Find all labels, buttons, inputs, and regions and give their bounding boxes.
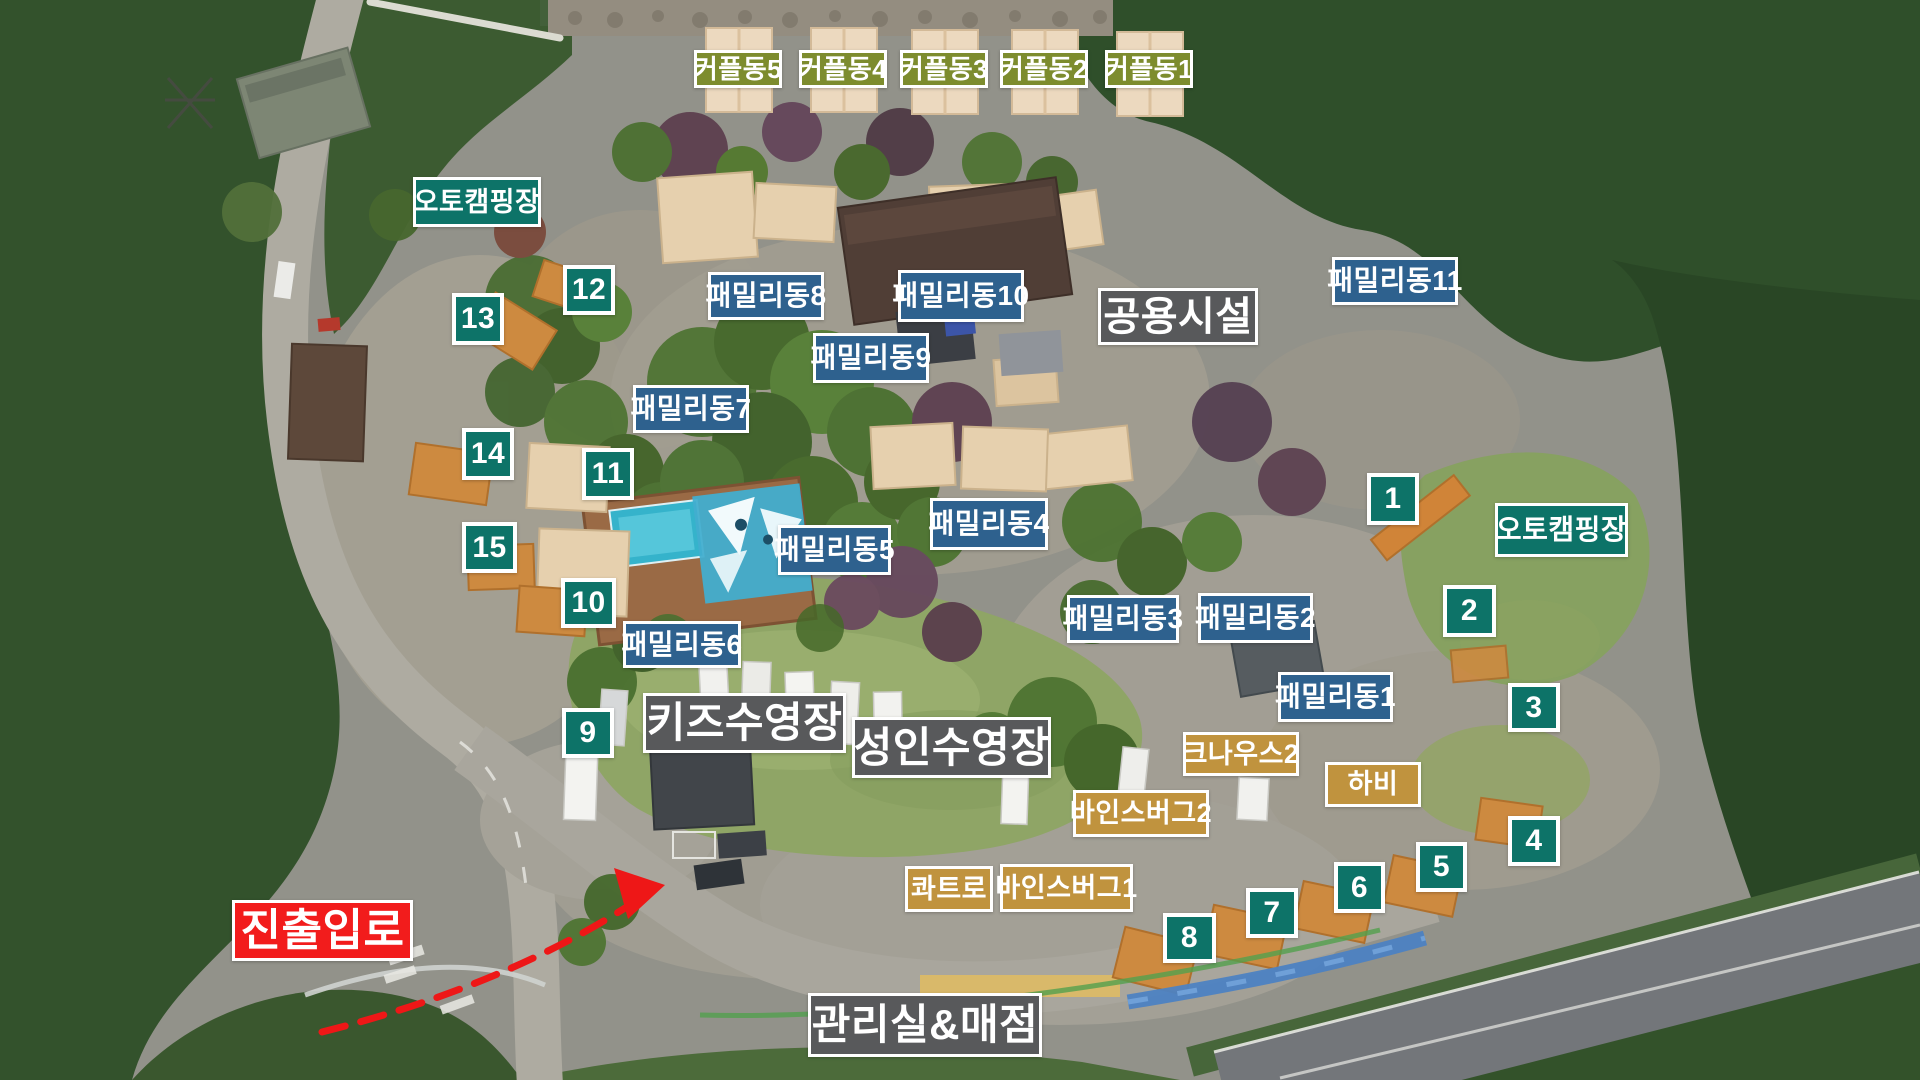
label-site-5: 5: [1416, 842, 1467, 892]
label-knaus-2: 크나우스2: [1183, 732, 1299, 776]
label-coupledong-3: 커플동3: [900, 50, 988, 88]
label-site-2: 2: [1443, 585, 1496, 637]
label-hobby: 하비: [1325, 762, 1421, 807]
label-site-8: 8: [1163, 913, 1216, 963]
label-site-12: 12: [563, 265, 615, 315]
label-coupledong-5: 커플동5: [694, 50, 782, 88]
label-familydong-2: 패밀리동2: [1198, 593, 1313, 643]
label-site-14: 14: [462, 428, 514, 480]
label-familydong-7: 패밀리동7: [633, 385, 749, 433]
label-site-9: 9: [562, 708, 614, 758]
label-site-13: 13: [452, 293, 504, 345]
label-office-store: 관리실&매점: [808, 993, 1042, 1057]
label-familydong-11: 패밀리동11: [1332, 257, 1458, 305]
label-site-7: 7: [1246, 888, 1298, 938]
label-familydong-3: 패밀리동3: [1067, 595, 1179, 643]
label-familydong-9: 패밀리동9: [813, 333, 929, 383]
label-shared-facility: 공용시설: [1098, 288, 1258, 345]
campground-map: 커플동5커플동4커플동3커플동2커플동1오토캠핑장오토캠핑장1213141511…: [0, 0, 1920, 1080]
label-familydong-5: 패밀리동5: [778, 525, 891, 575]
label-coupledong-1: 커플동1: [1105, 50, 1193, 88]
label-adult-pool: 성인수영장: [852, 717, 1051, 778]
label-weinsberg-1: 바인스버그1: [1000, 864, 1133, 912]
label-quatro: 콰트로: [905, 866, 993, 912]
label-familydong-8: 패밀리동8: [708, 272, 824, 320]
label-site-6: 6: [1334, 862, 1385, 913]
label-auto-camping-left: 오토캠핑장: [413, 177, 541, 227]
label-site-11: 11: [582, 448, 634, 500]
label-site-4: 4: [1508, 816, 1560, 866]
label-familydong-1: 패밀리동1: [1278, 672, 1393, 722]
label-coupledong-4: 커플동4: [799, 50, 887, 88]
label-familydong-4: 패밀리동4: [930, 498, 1048, 550]
label-site-1: 1: [1367, 473, 1419, 525]
label-kids-pool: 키즈수영장: [643, 693, 846, 753]
labels-layer: 커플동5커플동4커플동3커플동2커플동1오토캠핑장오토캠핑장1213141511…: [0, 0, 1920, 1080]
label-familydong-10: 패밀리동10: [898, 270, 1024, 322]
label-entrance-exit: 진출입로: [232, 900, 413, 961]
label-familydong-6: 패밀리동6: [623, 621, 741, 668]
label-site-15: 15: [462, 522, 517, 573]
label-site-3: 3: [1508, 683, 1560, 732]
label-site-10: 10: [561, 578, 616, 628]
label-coupledong-2: 커플동2: [1000, 50, 1088, 88]
label-auto-camping-right: 오토캠핑장: [1495, 503, 1628, 557]
label-weinsberg-2: 바인스버그2: [1073, 790, 1209, 837]
